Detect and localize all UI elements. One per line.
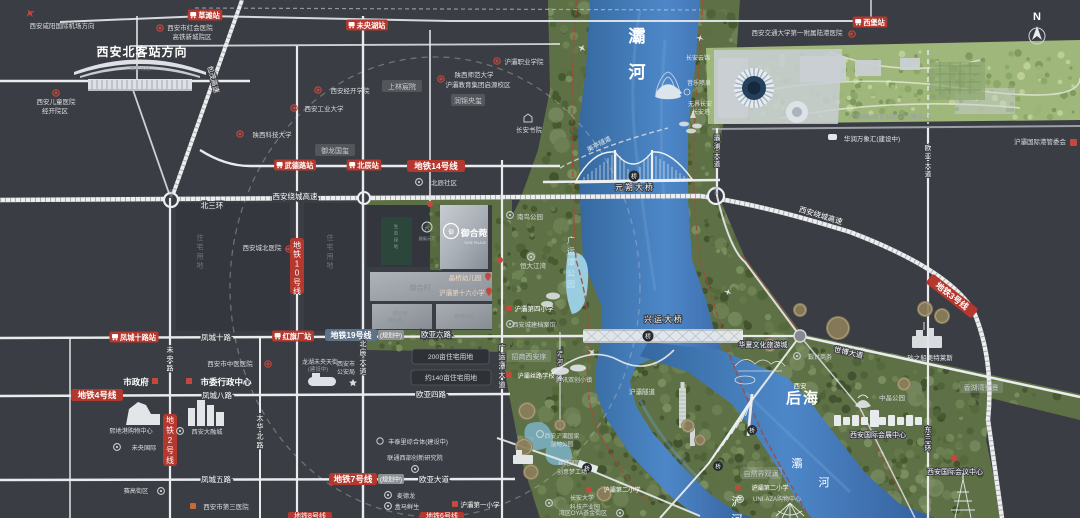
svg-text:UNI·AZA购物中心: UNI·AZA购物中心 [753,495,801,503]
svg-text:西安市第三医院: 西安市第三医院 [203,502,249,511]
svg-text:西安经开学院: 西安经开学院 [331,86,371,95]
svg-text:市政府: 市政府 [123,377,149,387]
svg-text:迎宾: 迎宾 [169,188,173,199]
svg-text:地铁19号线: 地铁19号线 [331,330,372,340]
svg-text:长安云锦: 长安云锦 [686,54,710,62]
svg-text:西安城北医院: 西安城北医院 [243,243,283,252]
svg-text:御合菀: 御合菀 [460,227,488,238]
svg-text:凤城十路: 凤城十路 [201,332,231,342]
svg-text:未央湖站: 未央湖站 [356,21,387,30]
svg-text:元 朔 大 桥: 元 朔 大 桥 [615,182,653,192]
svg-text:沪灞教育集团启源校区: 沪灞教育集团启源校区 [446,80,512,89]
svg-text:陕西师范大学: 陕西师范大学 [455,70,495,79]
svg-text:武德路站: 武德路站 [285,161,315,170]
svg-text:恒大江湾: 恒大江湾 [520,261,547,270]
svg-text:璟合府: 璟合府 [392,310,407,317]
svg-text:湿地公园: 湿地公园 [550,440,573,448]
svg-text:欧亚大道: 欧亚大道 [925,143,932,178]
svg-text:國風示范: 國風示范 [419,235,436,242]
svg-text:西安国际会议中心: 西安国际会议中心 [927,467,983,476]
svg-text:西安北站: 西安北站 [130,65,150,72]
svg-text:欧亚六路: 欧亚六路 [421,329,451,339]
svg-text:御龙国玺: 御龙国玺 [321,146,349,155]
svg-text:浐灞国际体育训练中心(建设中): 浐灞国际体育训练中心(建设中) [849,113,931,121]
svg-text:丰泰里综合体(建设中): 丰泰里综合体(建设中) [388,438,448,446]
svg-text:宫城社区: 宫城社区 [454,313,474,320]
svg-text:沪灞国际港管委会: 沪灞国际港管委会 [1014,137,1067,146]
svg-text:盒马鲜生: 盒马鲜生 [395,503,420,511]
svg-text:灞: 灞 [792,457,803,470]
svg-text:凤城八路: 凤城八路 [202,390,232,400]
svg-text:草滩站: 草滩站 [198,11,220,20]
svg-text:西安市: 西安市 [337,360,355,368]
svg-text:广运潭公园: 广运潭公园 [567,235,575,289]
svg-text:桥: 桥 [631,173,637,181]
svg-text:音乐喷泉: 音乐喷泉 [687,79,711,87]
svg-text:(规划中): (规划中) [380,332,402,340]
svg-text:创意梦工场: 创意梦工场 [557,468,587,476]
svg-text:西安: 西安 [794,381,808,390]
svg-text:西安绕城高速: 西安绕城高速 [273,191,318,201]
svg-text:无界长安: 无界长安 [688,100,712,108]
svg-text:华润万象汇(建设中): 华润万象汇(建设中) [844,134,900,143]
svg-text:御合村: 御合村 [410,283,431,292]
svg-text:灞浦大道: 灞浦大道 [714,133,721,168]
svg-text:东三环: 东三环 [925,425,932,452]
svg-text:润锦央玺: 润锦央玺 [454,96,482,105]
svg-text:晶桥幼儿园: 晶桥幼儿园 [449,273,482,282]
svg-text:觐针商务: 觐针商务 [808,353,832,361]
svg-text:市委行政中心: 市委行政中心 [200,377,252,387]
svg-text:未央国际: 未央国际 [132,444,157,452]
svg-text:西安工业大学: 西安工业大学 [305,104,345,113]
svg-text:凤城五路: 凤城五路 [201,474,231,484]
svg-text:经开院区: 经开院区 [42,106,69,115]
svg-text:公安局: 公安局 [337,368,355,376]
svg-text:熙地港购物中心: 熙地港购物中心 [109,427,152,435]
svg-text:西安北客站方向: 西安北客站方向 [96,44,187,59]
svg-text:约140亩住宅用地: 约140亩住宅用地 [425,373,477,382]
svg-text:兴 运 大 桥: 兴 运 大 桥 [644,314,682,324]
svg-text:河: 河 [819,476,830,489]
svg-text:赛高街区: 赛高街区 [124,487,149,495]
svg-text:西安咸阳国际机场方向: 西安咸阳国际机场方向 [30,21,95,30]
svg-text:YUHE PALACE: YUHE PALACE [464,241,486,245]
svg-text:陕西科技大学: 陕西科技大学 [253,130,293,139]
svg-text:欧亚大道: 欧亚大道 [419,474,449,484]
svg-text:中晶公园: 中晶公园 [879,393,905,402]
svg-text:沪灞第二小学: 沪灞第二小学 [751,484,788,492]
svg-text:南鸟公园: 南鸟公园 [517,212,543,221]
svg-text:沪灞第十六小学: 沪灞第十六小学 [439,288,485,297]
svg-text:西安交通大学第一附属陆港医院: 西安交通大学第一附属陆港医院 [752,28,844,37]
svg-text:湾区OYA荟金街区: 湾区OYA荟金街区 [559,509,607,517]
svg-text:沪灞隧道: 沪灞隧道 [629,387,656,396]
svg-text:北辰社区: 北辰社区 [431,178,458,187]
svg-text:御: 御 [448,228,454,236]
svg-text:长安书院: 长安书院 [516,125,543,134]
svg-text:西安国际会展中心: 西安国际会展中心 [850,430,906,439]
svg-text:200亩住宅用地: 200亩住宅用地 [428,352,474,361]
svg-text:西安浐灞国家: 西安浐灞国家 [545,432,580,440]
svg-text:香湖: 香湖 [714,185,718,196]
svg-text:地铁14号线: 地铁14号线 [414,161,458,171]
svg-text:凤城十路站: 凤城十路站 [120,333,157,342]
svg-text:西安市红会医院: 西安市红会医院 [167,23,213,32]
svg-text:沪灞第二小学: 沪灞第二小学 [603,486,640,494]
svg-text:御合里: 御合里 [387,317,402,324]
svg-text:地铁6号线: 地铁6号线 [426,511,458,518]
svg-text:腾讯双创小镇: 腾讯双创小镇 [556,376,592,384]
svg-text:地铁4号线: 地铁4号线 [78,390,117,400]
svg-text:沪灞丝路学校: 沪灞丝路学校 [517,372,554,380]
svg-text:地铁7号线: 地铁7号线 [334,474,373,484]
svg-text:西安大融城: 西安大融城 [192,428,223,436]
svg-text:红旗厂站: 红旗厂站 [283,332,313,341]
svg-text:科技产业园: 科技产业园 [570,503,600,511]
svg-text:桥: 桥 [715,463,721,471]
svg-text:龙湖未央天街: 龙湖未央天街 [302,358,338,366]
svg-text:招商西安序: 招商西安序 [512,352,547,361]
svg-text:桥: 桥 [749,427,755,435]
svg-text:西堡站: 西堡站 [863,18,885,27]
svg-text:(规划中): (规划中) [380,476,402,484]
svg-text:西安城建档案馆: 西安城建档案馆 [512,321,555,329]
svg-text:广运潭大道: 广运潭大道 [499,343,506,389]
svg-text:自然界观澜: 自然界观澜 [744,469,779,478]
svg-text:北辰站: 北辰站 [357,161,379,170]
svg-text:华夏文化旅游城: 华夏文化旅游城 [739,340,788,349]
svg-text:欧亚四路: 欧亚四路 [416,389,446,399]
svg-text:丝路国际: 丝路国际 [558,459,582,467]
svg-text:北三环: 北三环 [201,201,224,210]
svg-text:沪灞职业学院: 沪灞职业学院 [505,57,545,66]
svg-text:联通西部创新研究院: 联通西部创新研究院 [387,454,443,462]
svg-text:西安儿童医院: 西安儿童医院 [37,97,77,106]
svg-text:地铁8号线: 地铁8号线 [294,511,326,518]
svg-text:(建设中): (建设中) [308,365,328,373]
svg-text:西安市中医医院: 西安市中医医院 [207,359,253,368]
svg-text:长安大学: 长安大学 [570,494,594,502]
svg-text:麦德龙: 麦德龙 [397,492,416,500]
svg-text:上林宸院: 上林宸院 [388,82,416,91]
svg-text:香湖湾峯景: 香湖湾峯景 [964,383,999,392]
svg-text:未央路: 未央路 [167,345,174,372]
svg-text:桥: 桥 [645,333,651,341]
svg-text:六: 六 [424,225,429,232]
svg-text:沪灞第一小学: 沪灞第一小学 [461,500,501,509]
svg-text:砂之船奥特莱斯: 砂之船奥特莱斯 [907,353,953,362]
svg-text:后海: 后海 [786,389,820,407]
svg-text:N: N [1033,11,1041,23]
svg-text:高铁新城院区: 高铁新城院区 [173,32,213,41]
